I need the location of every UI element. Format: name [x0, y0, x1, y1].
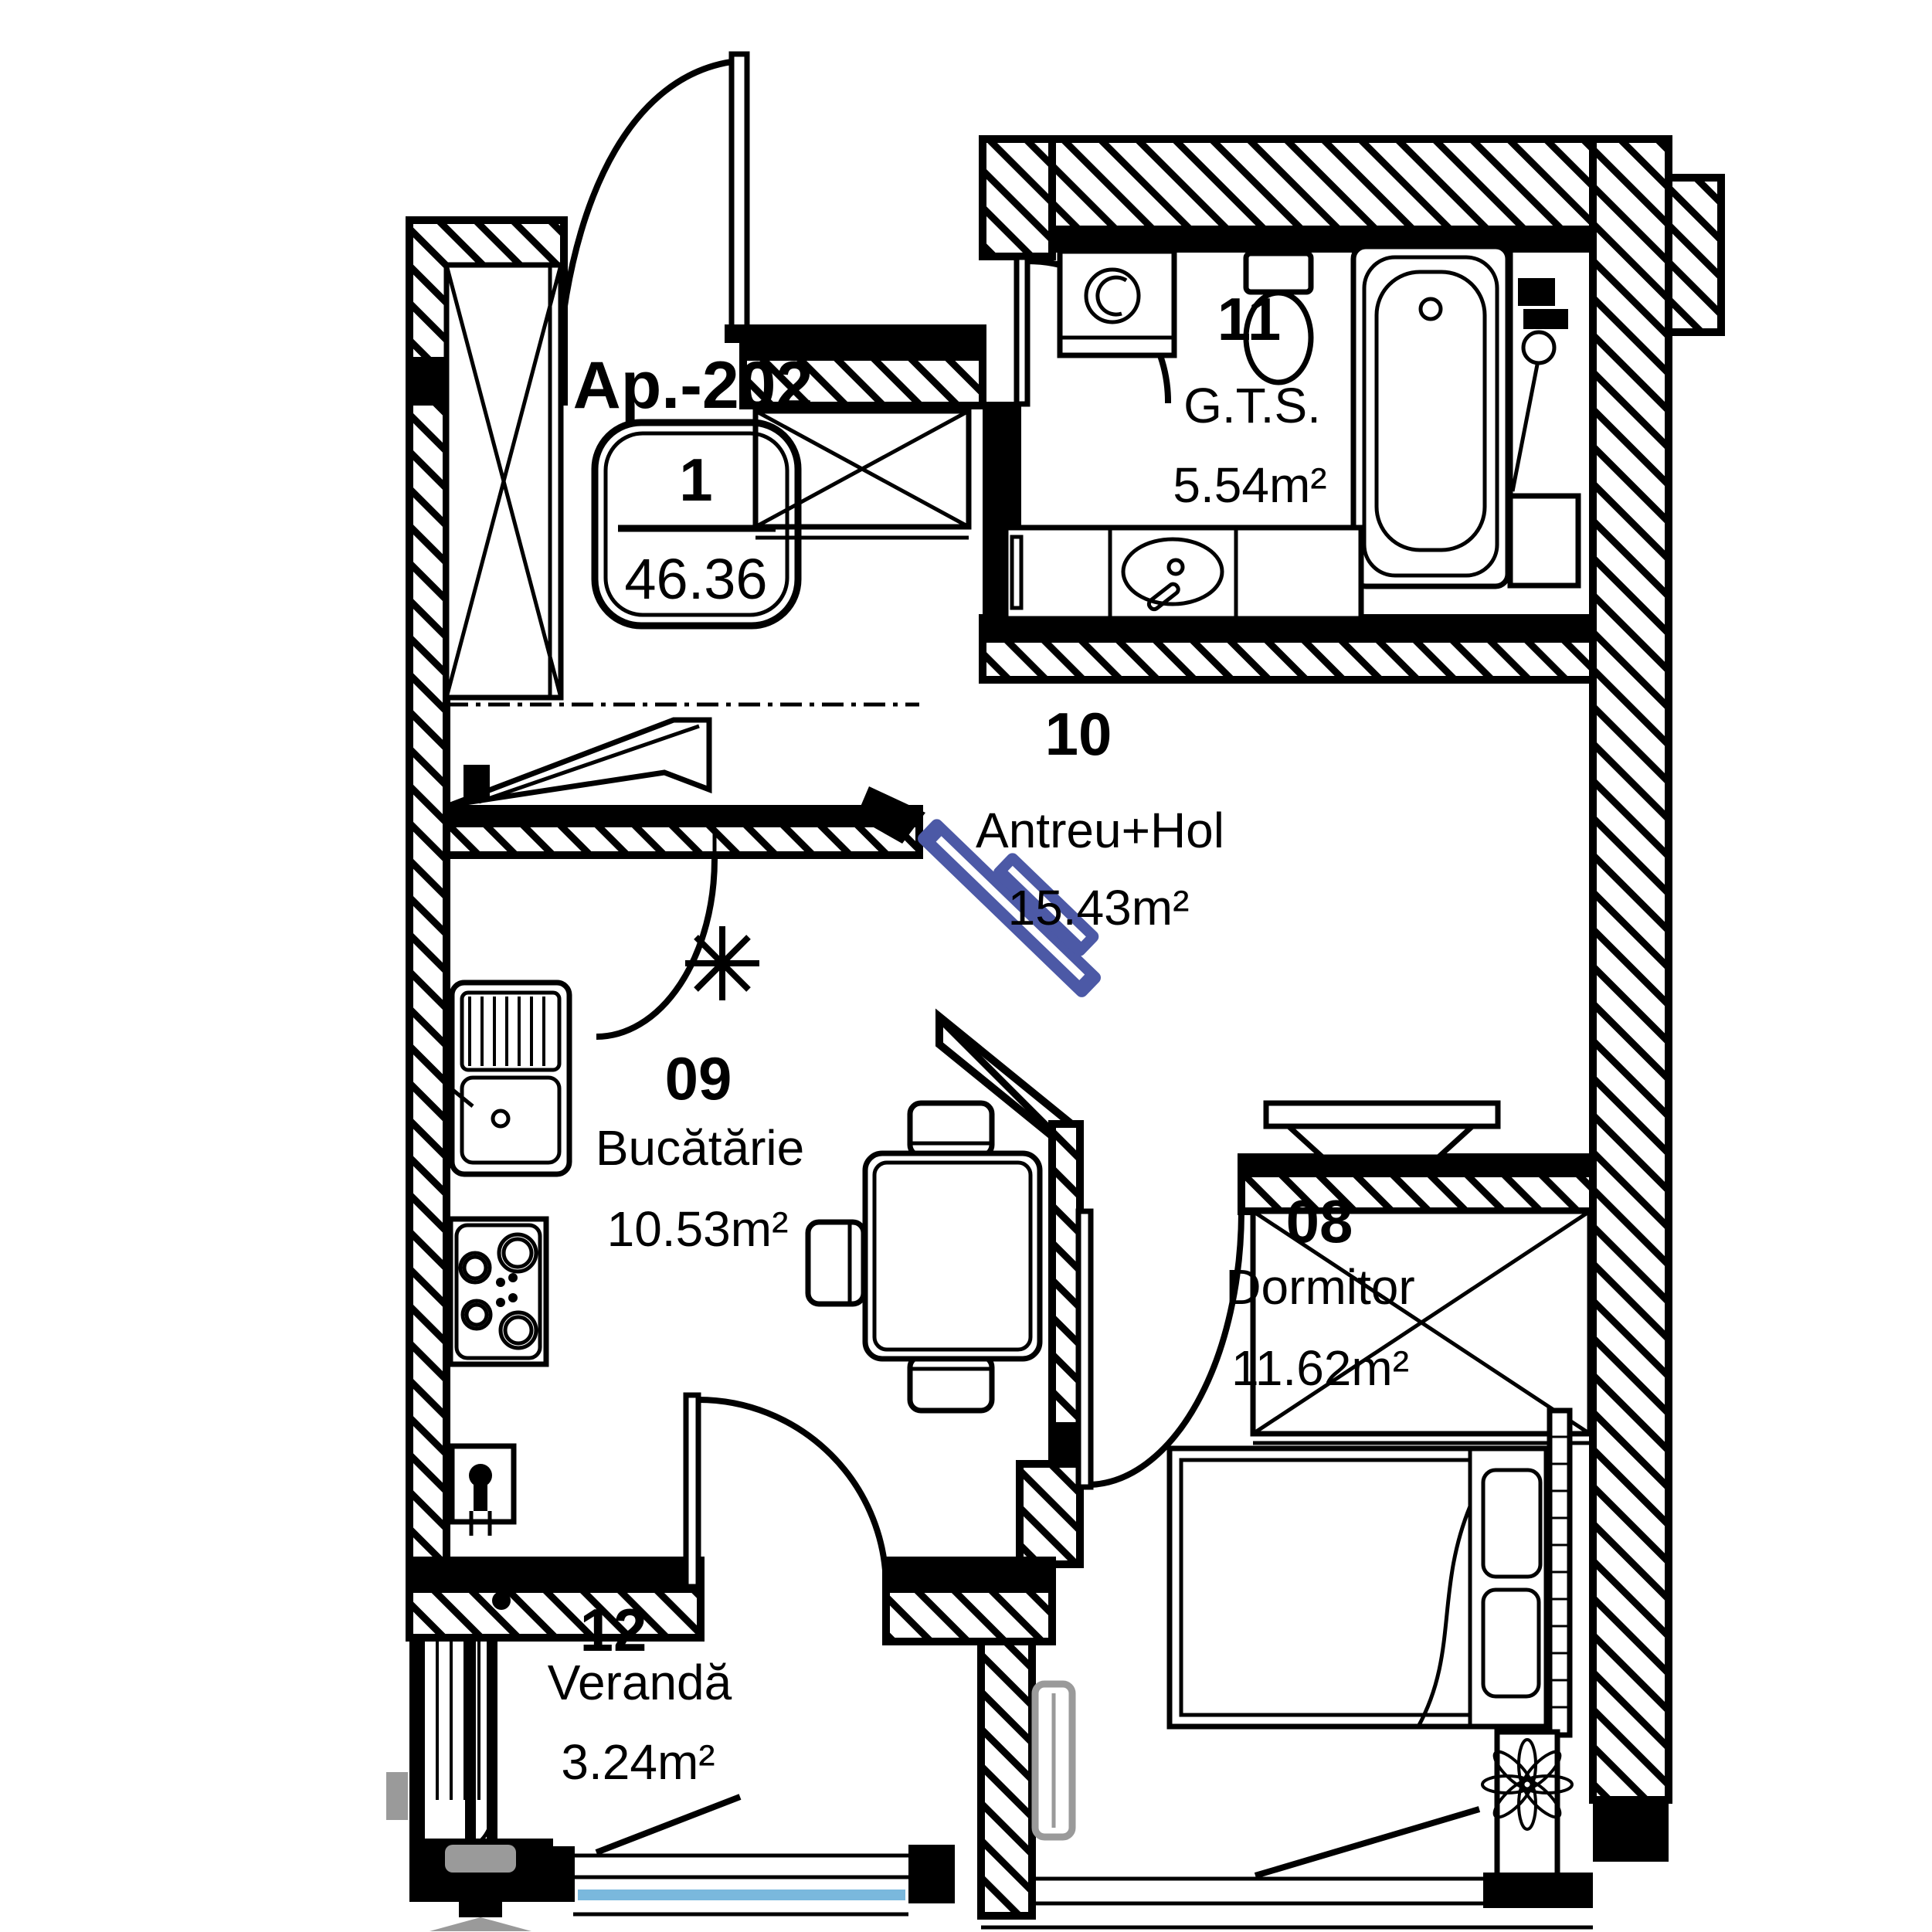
washing-machine: [1060, 251, 1174, 355]
dining-set: [808, 1103, 1040, 1411]
bathtub: [1353, 246, 1508, 586]
bed: [1170, 1448, 1547, 1727]
stove-knob: [496, 1298, 505, 1307]
wall-face: [1241, 1157, 1593, 1177]
wall-face: [983, 618, 1593, 643]
console-top: [1266, 1103, 1498, 1126]
chair: [910, 1103, 992, 1156]
veranda-left-frame: [409, 1638, 425, 1840]
downpipe-bar: [465, 1638, 476, 1846]
wall-face: [1052, 226, 1593, 249]
room-area-hall: 15.43m²: [1008, 880, 1190, 935]
stove-knob: [508, 1293, 518, 1302]
bedroom-door-swing-arc: [1091, 1213, 1241, 1485]
corner-wall: [983, 139, 1052, 256]
bottom-right-wall-cap: [1593, 1800, 1669, 1862]
bedroom-radiator: [1550, 1411, 1570, 1735]
sink-drainer-lines: [470, 997, 544, 1066]
veranda-right-wall: [981, 1642, 1032, 1916]
downpipe-foot: [430, 1917, 531, 1931]
chair: [910, 1356, 992, 1411]
wall-face: [409, 1560, 701, 1593]
gas-valve: [469, 1464, 492, 1487]
kitchen-sink: [452, 983, 569, 1174]
room-area-gts: 5.54m²: [1173, 457, 1326, 513]
bedroom-door: [1078, 1211, 1241, 1487]
room-name-bedroom: Dormitor: [1225, 1259, 1414, 1315]
apartment-total-area: 46.36: [624, 547, 767, 611]
top-right-wall-stub: [1669, 178, 1721, 332]
room-number-veranda: 12: [580, 1596, 647, 1664]
kitchen-table: [865, 1153, 1040, 1359]
room-name-hall: Antreu+Hol: [976, 803, 1224, 858]
hall-console: [1266, 1103, 1498, 1157]
vanity: [1006, 528, 1361, 619]
stove: [450, 1219, 546, 1364]
veranda-window: [541, 1797, 955, 1914]
entrance-door-swing-arc: [562, 62, 732, 328]
window-opening-indicator: [596, 1797, 740, 1852]
plant: [1482, 1732, 1572, 1886]
floorplan-drawing: Ap.-202 1 46.36 11 G.T.S. 5.54m² 10 Antr…: [0, 0, 1932, 1932]
apartment-label: Ap.-202: [573, 348, 813, 423]
downpipe-bar: [487, 1638, 497, 1846]
room-area-kitchen: 10.53m²: [607, 1201, 789, 1257]
console-front: [1289, 1126, 1472, 1157]
room-number-kitchen: 09: [665, 1044, 732, 1112]
room-number-hall: 10: [1045, 700, 1112, 768]
floorplan-page: Ap.-202 1 46.36 11 G.T.S. 5.54m² 10 Antr…: [0, 0, 1932, 1932]
wall-end-dot: [492, 1591, 511, 1610]
veranda-door-leaf: [686, 1395, 698, 1587]
entrance-door-leaf: [732, 54, 747, 331]
downpipe-cap: [445, 1845, 516, 1873]
pipe-diagonal: [1513, 365, 1537, 491]
stove-knob: [496, 1278, 505, 1287]
room-area-veranda: 3.24m²: [561, 1734, 715, 1790]
pipe-joint: [1523, 332, 1554, 363]
veranda-door-swing-arc: [698, 1400, 886, 1587]
apartment-unit-rooms: 1: [679, 446, 712, 514]
left-exterior-wall: [409, 220, 446, 1560]
pipe-valve: [1523, 309, 1568, 329]
pipe-valve: [1518, 278, 1555, 306]
chair: [808, 1222, 864, 1304]
exterior-gray-fitting: [386, 1772, 408, 1820]
kitchen-veranda-door: [686, 1395, 886, 1587]
washing-machine-body: [1060, 251, 1174, 355]
room-name-kitchen: Bucătărie: [596, 1120, 804, 1176]
downpipe-box: [459, 1873, 502, 1917]
gas-pipe: [474, 1485, 487, 1511]
window-jamb: [1483, 1873, 1593, 1908]
bedroom-door-leaf: [1078, 1211, 1091, 1487]
stove-knob: [508, 1273, 518, 1282]
shower-base: [1510, 496, 1578, 586]
room-number-bedroom: 08: [1286, 1187, 1353, 1255]
entrance-door: [562, 54, 752, 343]
room-name-veranda: Verandă: [548, 1655, 732, 1710]
cabinet-door-arc: [596, 859, 715, 1037]
bathroom-pipes: [1510, 249, 1578, 586]
right-exterior-wall: [1593, 139, 1669, 1800]
divider-wall-lower: [1020, 1464, 1080, 1564]
window-jamb: [541, 1846, 575, 1902]
room-area-bedroom: 11.62m²: [1231, 1340, 1409, 1396]
window-jamb: [908, 1845, 955, 1903]
room-name-gts: G.T.S.: [1183, 378, 1321, 433]
bathroom-door-leaf: [1017, 257, 1027, 404]
boiler-symbol: [685, 926, 759, 1000]
entrance-door-hinge: [725, 324, 752, 343]
wall-face: [446, 809, 919, 827]
window-opening-indicator: [1255, 1809, 1479, 1876]
gas-meter: [452, 1446, 514, 1536]
kitchen-pipe: [463, 765, 490, 799]
wall-face: [886, 1560, 1052, 1593]
bed-frame: [1170, 1448, 1547, 1727]
room-number-gts: 11: [1217, 285, 1281, 353]
veranda-side-radiator: [1035, 1684, 1072, 1837]
